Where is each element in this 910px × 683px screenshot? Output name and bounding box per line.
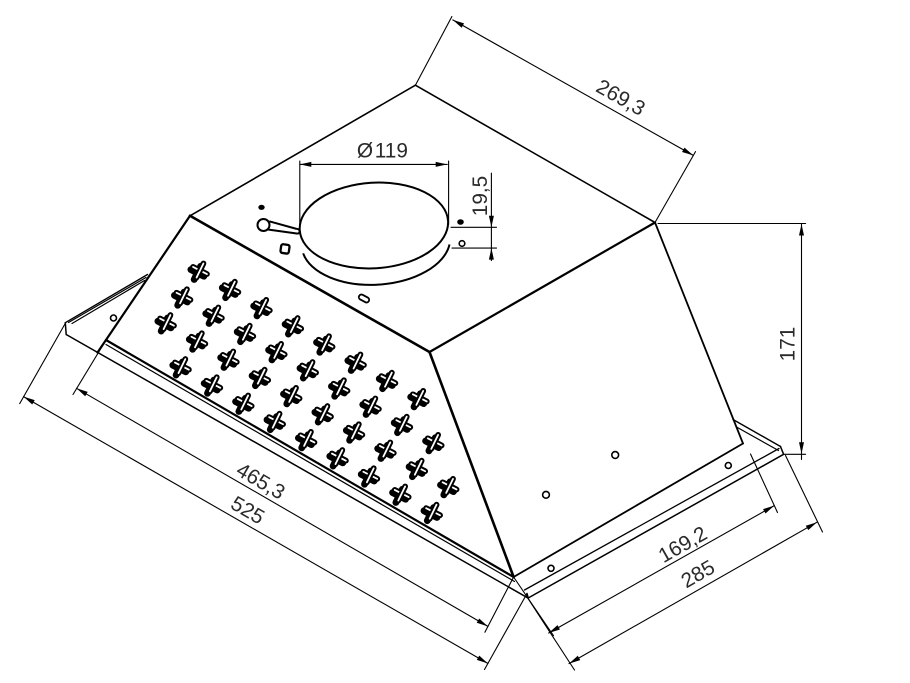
svg-text:171: 171	[777, 327, 800, 362]
svg-text:Ø 119: Ø 119	[357, 140, 408, 163]
svg-text:19,5: 19,5	[469, 176, 492, 216]
